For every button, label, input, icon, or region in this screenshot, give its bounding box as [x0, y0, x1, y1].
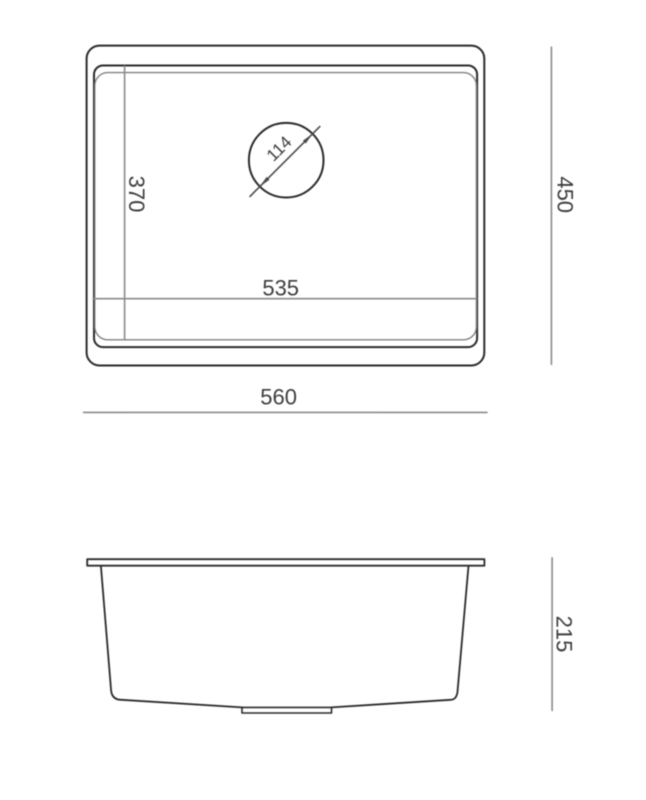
svg-text:370: 370	[124, 176, 149, 213]
svg-text:215: 215	[551, 616, 576, 653]
svg-text:535: 535	[262, 276, 299, 301]
svg-text:450: 450	[552, 176, 577, 213]
svg-text:114: 114	[263, 132, 296, 165]
svg-text:560: 560	[260, 385, 297, 410]
